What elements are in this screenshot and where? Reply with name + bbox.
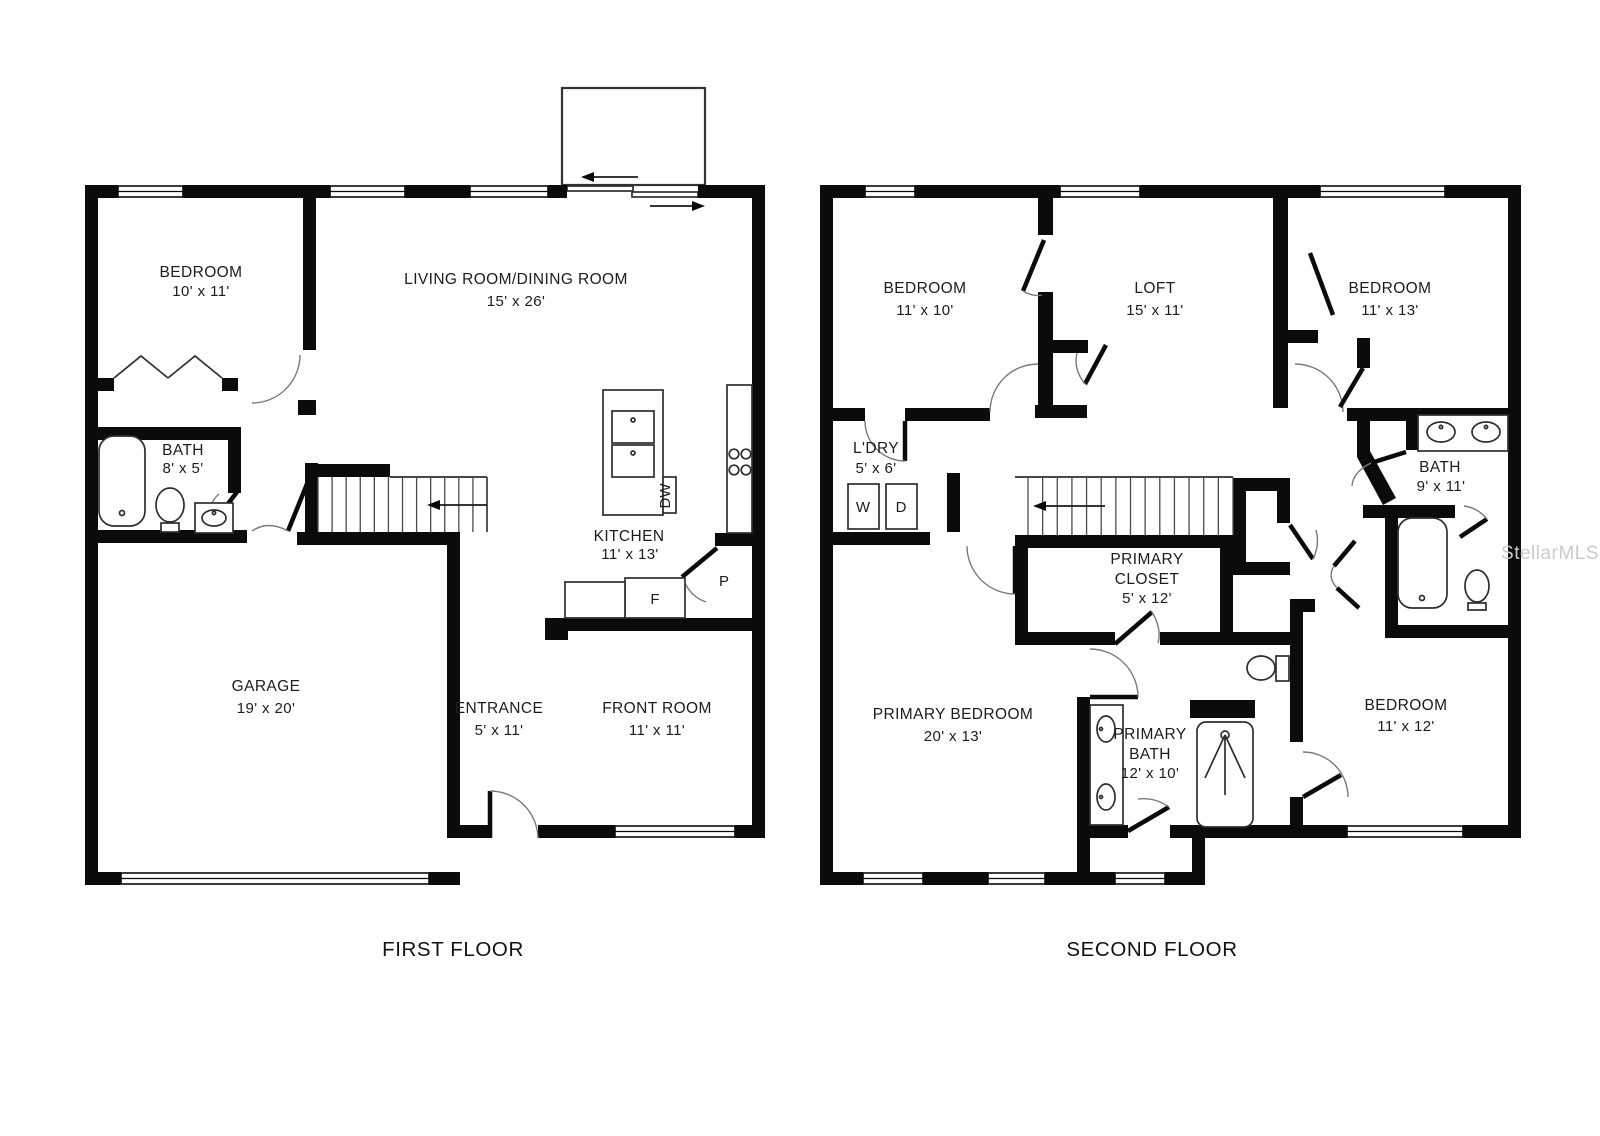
svg-text:5' x 6': 5' x 6' [855,460,896,477]
slider-arrow-left [581,172,638,182]
fridge-label: F [650,591,659,608]
svg-text:8' x 5': 8' x 5' [162,460,203,477]
sink [195,503,233,533]
second-floor-stairs [1015,477,1233,535]
svg-text:5' x 12': 5' x 12' [1122,590,1172,607]
svg-text:15' x 11': 15' x 11' [1126,302,1183,319]
watermark: StellarMLS [1501,543,1599,564]
room-label-bedroom: BEDROOM [160,264,243,281]
bath2-entry-leaf [1371,452,1406,463]
room-label-living-dining: LIVING ROOM/DINING ROOM [404,271,628,288]
room-label-laundry: L'DRY [853,440,899,457]
bedroom3-door-arc [1295,364,1343,412]
second-floor-title: SECOND FLOOR [1066,938,1237,961]
bathtub-2 [1398,518,1447,608]
toilet-2 [1465,570,1489,602]
primary-toilet [1247,656,1275,680]
stairs-direction-arrow [427,500,440,510]
hall-door-leaf-a [1334,541,1355,566]
bedroom-closet-doors [114,356,222,378]
garage-door [121,873,429,884]
svg-text:BATH: BATH [1129,746,1171,763]
linen-closet-leaf [1290,525,1313,559]
closet-door-leaf [1340,368,1363,407]
garage-door-leaf [288,484,307,531]
room-label-loft: LOFT [1134,280,1175,297]
kitchen-sink [612,411,654,443]
patio-outline [562,88,705,211]
bedroom4-door-leaf [1303,775,1341,797]
counter-box [565,582,625,618]
pantry-label: P [719,573,729,590]
svg-text:11' x 13': 11' x 13' [601,546,658,563]
svg-text:9' x 11': 9' x 11' [1417,478,1466,495]
front-door-arc [490,791,538,838]
bedroom-door-arc [252,355,300,403]
room-label-bath: BATH [162,442,204,459]
room-label-bedroom-4: BEDROOM [1365,697,1448,714]
pantry-door-leaf [682,548,717,577]
svg-text:20' x 13': 20' x 13' [924,728,983,745]
room-label-primary-bath: PRIMARY [1113,726,1186,743]
floor-plan-page: BEDROOM 10' x 11' LIVING ROOM/DINING ROO… [0,0,1600,1131]
bedroom3-closet-leaf [1310,253,1333,315]
second-floor-plan: BEDROOM 11' x 10' LOFT 15' x 11' BEDROOM… [820,185,1521,885]
double-vanity [1418,415,1508,451]
first-floor-stairs [318,477,487,532]
first-floor-plan: BEDROOM 10' x 11' LIVING ROOM/DINING ROO… [85,88,765,885]
svg-text:11' x 13': 11' x 13' [1361,302,1418,319]
svg-text:CLOSET: CLOSET [1115,571,1180,588]
room-label-bath-2: BATH [1419,459,1461,476]
bathtub [99,436,145,526]
room-label-entrance: ENTRANCE [455,700,543,717]
bath-lower-door-leaf [1128,807,1169,831]
svg-text:10' x 11': 10' x 11' [172,283,229,300]
dryer-label: D [896,499,907,516]
svg-text:19' x 20': 19' x 20' [237,700,296,717]
primary-closet-leaf [1115,612,1152,644]
svg-text:11' x 11': 11' x 11' [629,722,685,739]
svg-text:12' x 10': 12' x 10' [1121,765,1180,782]
stairs-direction-arrow-2 [1033,501,1046,511]
washer-label: W [856,499,871,516]
bedroom2-closet-leaf [1023,240,1044,291]
tub-room-door-leaf [1460,519,1487,537]
room-label-bedroom-2: BEDROOM [884,280,967,297]
svg-text:15' x 26': 15' x 26' [487,293,546,310]
floor-plan-drawing: BEDROOM 10' x 11' LIVING ROOM/DINING ROO… [0,0,1600,1131]
room-label-primary-bedroom: PRIMARY BEDROOM [873,706,1033,723]
room-label-bedroom-3: BEDROOM [1349,280,1432,297]
loft-closet-leaf [1085,345,1106,384]
hall-door-leaf-b [1337,588,1359,608]
svg-text:11' x 12': 11' x 12' [1377,718,1434,735]
first-floor-title: FIRST FLOOR [382,938,524,961]
svg-text:5' x 11': 5' x 11' [475,722,524,739]
svg-text:11' x 10': 11' x 10' [896,302,953,319]
room-label-garage: GARAGE [232,678,301,695]
room-label-front-room: FRONT ROOM [602,700,712,717]
bedroom2-door-arc [990,364,1038,412]
dishwasher-label: DW [657,483,674,509]
primary-vanity [1090,705,1123,825]
toilet [156,488,184,522]
room-label-kitchen: KITCHEN [594,528,665,545]
slider-arrow-right [650,201,705,211]
room-label-primary-closet: PRIMARY [1110,551,1183,568]
